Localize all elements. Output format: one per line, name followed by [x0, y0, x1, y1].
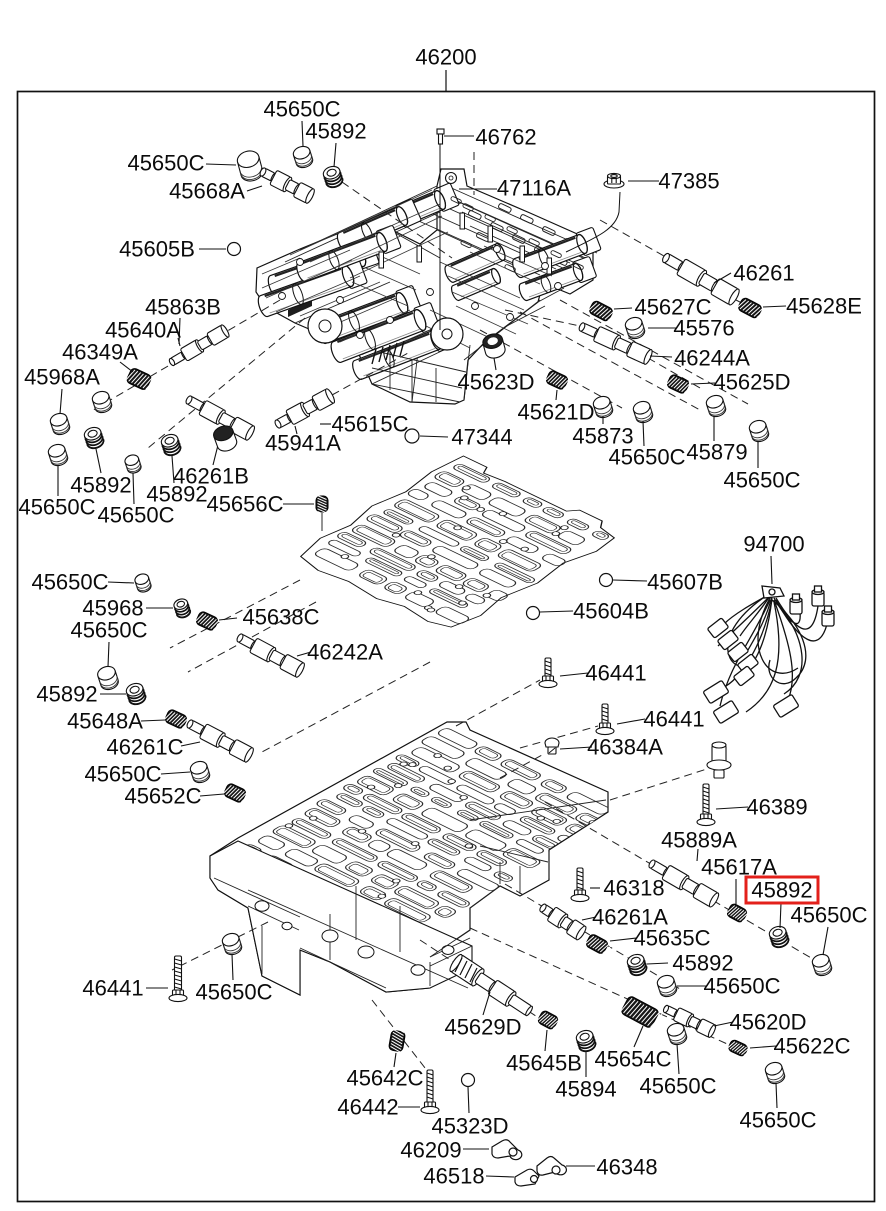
svg-text:45607B: 45607B: [647, 570, 723, 595]
svg-text:45968A: 45968A: [24, 365, 100, 390]
svg-text:45650C: 45650C: [739, 1108, 816, 1133]
svg-text:45622C: 45622C: [773, 1034, 850, 1059]
svg-text:45879: 45879: [686, 440, 747, 465]
svg-text:46389: 46389: [746, 795, 807, 820]
svg-text:45650C: 45650C: [703, 974, 780, 999]
svg-text:46441: 46441: [585, 661, 646, 686]
svg-text:45635C: 45635C: [633, 926, 710, 951]
svg-text:45620D: 45620D: [729, 1010, 806, 1035]
svg-text:45604B: 45604B: [573, 599, 649, 624]
svg-text:45638C: 45638C: [242, 605, 319, 630]
svg-text:45650C: 45650C: [195, 980, 272, 1005]
svg-text:45650C: 45650C: [70, 618, 147, 643]
svg-text:46261: 46261: [733, 261, 794, 286]
svg-text:47116A: 47116A: [497, 176, 572, 201]
svg-text:45650C: 45650C: [18, 495, 95, 520]
svg-text:45628E: 45628E: [786, 294, 862, 319]
svg-text:45615C: 45615C: [331, 412, 408, 437]
svg-text:46318: 46318: [603, 876, 664, 901]
svg-text:45605B: 45605B: [119, 237, 195, 262]
svg-text:45650C: 45650C: [723, 468, 800, 493]
svg-text:45323D: 45323D: [431, 1114, 508, 1139]
svg-text:45621D: 45621D: [517, 400, 594, 425]
svg-text:46348: 46348: [596, 1155, 657, 1180]
svg-text:46209: 46209: [400, 1138, 461, 1163]
svg-text:47344: 47344: [451, 425, 512, 450]
svg-text:46441: 46441: [643, 707, 704, 732]
svg-text:46762: 46762: [475, 125, 536, 150]
svg-text:46384A: 46384A: [587, 735, 663, 760]
svg-text:46242A: 46242A: [307, 640, 383, 665]
svg-text:45652C: 45652C: [124, 784, 201, 809]
svg-text:45576: 45576: [673, 316, 734, 341]
svg-text:45889A: 45889A: [661, 828, 737, 853]
svg-text:46261C: 46261C: [106, 735, 183, 760]
svg-text:45645B: 45645B: [506, 1051, 582, 1076]
svg-text:94700: 94700: [743, 532, 804, 557]
svg-text:45892: 45892: [751, 878, 812, 903]
svg-text:45648A: 45648A: [67, 709, 143, 734]
svg-text:45892: 45892: [36, 682, 97, 707]
svg-text:46349A: 46349A: [62, 340, 138, 365]
svg-text:45668A: 45668A: [169, 179, 245, 204]
svg-text:45892: 45892: [305, 119, 366, 144]
svg-text:47385: 47385: [658, 169, 719, 194]
svg-text:45941A: 45941A: [265, 431, 341, 456]
svg-text:46442: 46442: [337, 1095, 398, 1120]
svg-text:45654C: 45654C: [594, 1047, 671, 1072]
svg-text:45894: 45894: [555, 1077, 616, 1102]
svg-text:45650C: 45650C: [790, 903, 867, 928]
svg-text:45650C: 45650C: [97, 503, 174, 528]
svg-text:46441: 46441: [82, 976, 143, 1001]
svg-text:45650C: 45650C: [608, 445, 685, 470]
svg-text:45650C: 45650C: [127, 151, 204, 176]
svg-text:45892: 45892: [672, 951, 733, 976]
svg-text:45863B: 45863B: [145, 295, 221, 320]
svg-text:45629D: 45629D: [444, 1015, 521, 1040]
svg-text:46518: 46518: [423, 1164, 484, 1189]
svg-text:45642C: 45642C: [346, 1066, 423, 1091]
svg-text:45656C: 45656C: [206, 492, 283, 517]
svg-text:46244A: 46244A: [674, 346, 750, 371]
svg-text:45625D: 45625D: [713, 370, 790, 395]
svg-text:45650C: 45650C: [31, 570, 108, 595]
svg-text:45650C: 45650C: [639, 1074, 716, 1099]
svg-text:46200: 46200: [415, 45, 476, 70]
svg-text:45623D: 45623D: [457, 370, 534, 395]
